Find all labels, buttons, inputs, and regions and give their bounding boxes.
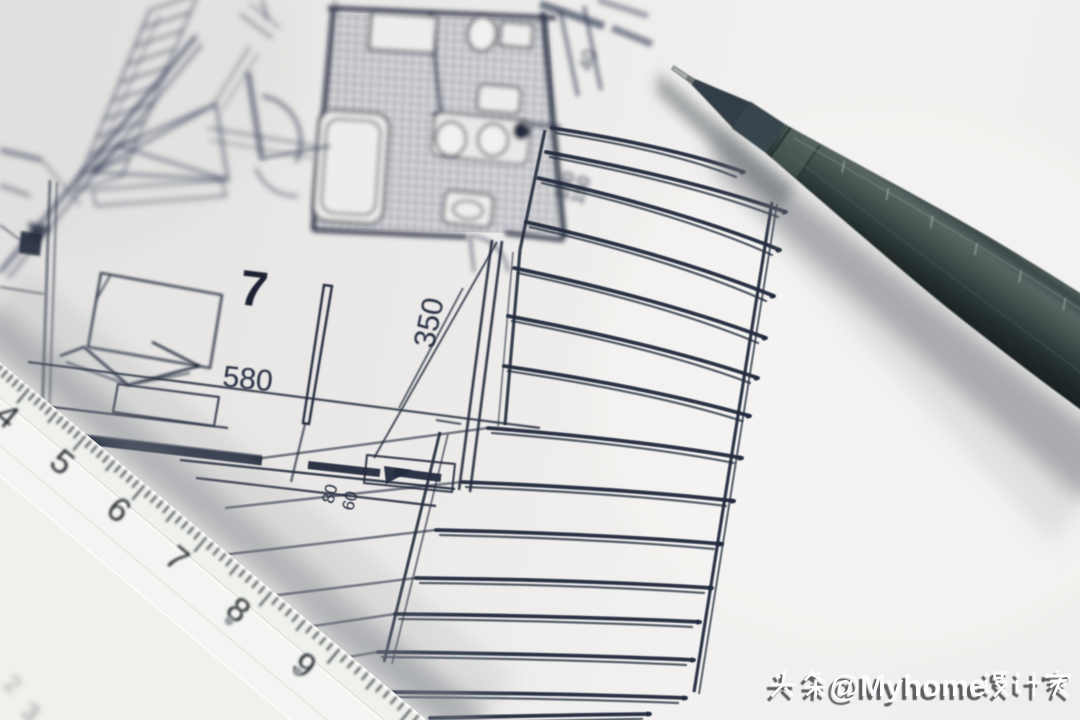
svg-text:@Myhome: @Myhome [830,668,986,703]
svg-text:7: 7 [237,259,271,318]
svg-text:350: 350 [408,295,451,351]
svg-text:80: 80 [318,482,341,505]
svg-text:580: 580 [221,360,274,398]
